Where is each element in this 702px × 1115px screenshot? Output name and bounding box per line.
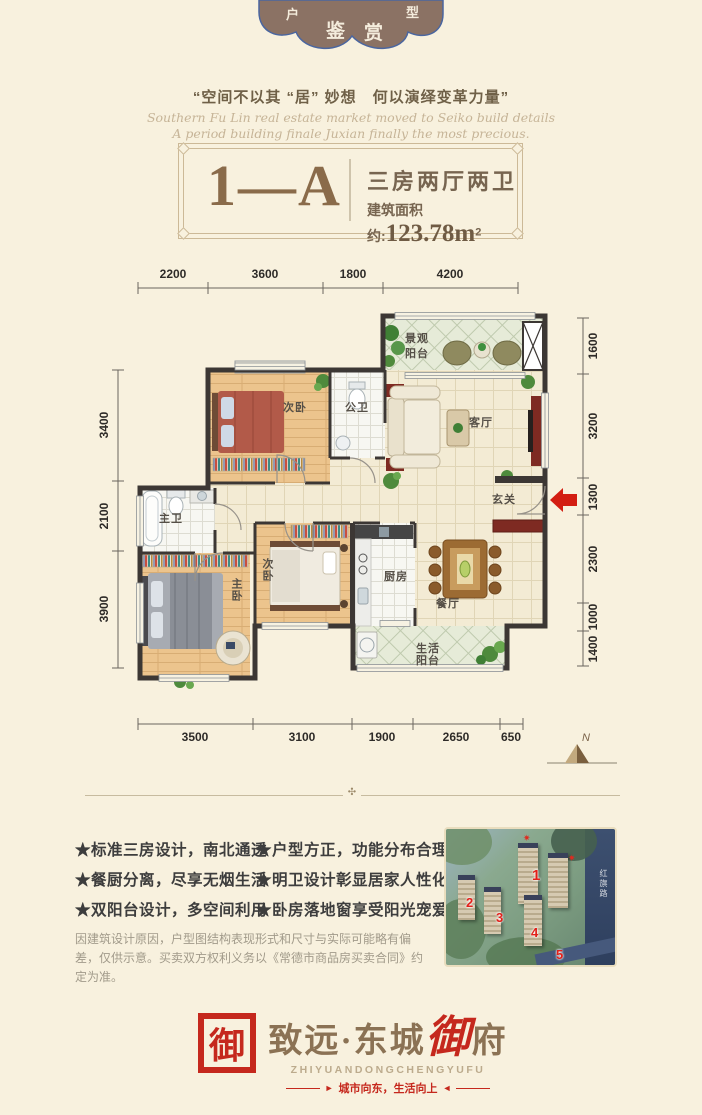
unit-area-sup: 2 [475, 226, 481, 238]
unit-area: 建筑面积约:123.78m2 [367, 200, 522, 248]
logo-star-icon: ✷ [523, 833, 531, 844]
dim-right-0: 1600 [586, 332, 600, 359]
brand-tagline: 城市向东，生活向上 [339, 1080, 438, 1096]
dim-bottom-2: 1900 [369, 730, 396, 744]
logo-star-icon: ✷ [568, 853, 576, 864]
dim-top-1: 3600 [252, 267, 279, 281]
tagline-arrow-right-icon: ► [325, 1083, 334, 1093]
brand-suffix: 府 [472, 1023, 508, 1060]
dim-right-4: 1000 [586, 603, 600, 630]
brand-name: 致远·东城御府 [268, 1018, 508, 1062]
dim-right-5: 1400 [586, 635, 600, 662]
north-arrow-icon [577, 744, 589, 763]
label-view-balcony-1: 景观 [404, 332, 429, 345]
badge-char-hu: 户 [286, 7, 299, 22]
label-view-balcony-2: 阳台 [405, 346, 429, 360]
unit-spec: 三房两厅两卫 建筑面积约:123.78m2 [367, 164, 522, 248]
feature-item: ★标准三房设计，南北通透 [75, 836, 267, 866]
label-kitchen: 厨房 [384, 569, 408, 583]
header-badge: 户 鉴 赏 型 [256, 0, 446, 58]
dim-left-2: 3900 [97, 595, 111, 622]
unit-title-box: 1—A 三房两厅两卫 建筑面积约:123.78m2 [178, 143, 523, 239]
unit-number: 1—A [207, 152, 342, 219]
feature-list-right: ★户型方正，功能分布合理 ★明卫设计彰显居家人性化 ★卧房落地窗享受阳光宠爱 [256, 836, 448, 926]
badge-char-jian: 鉴 [325, 20, 346, 42]
poster-page: 户 鉴 赏 型 “空间不以其 “居” 妙想 何以演绎变革力量” Southern… [0, 0, 702, 1115]
label-life-balcony-2: 阳台 [416, 653, 440, 667]
trees [444, 827, 492, 865]
north-arrow-icon [565, 744, 577, 763]
dining-table [429, 540, 501, 598]
frame-corner-icon [511, 142, 524, 155]
dim-bottom-1: 3100 [289, 730, 316, 744]
slogan: “空间不以其 “居” 妙想 何以演绎变革力量” [0, 86, 702, 107]
label-master-bath: 主卫 [159, 511, 183, 525]
english-script-line1: Southern Fu Lin real estate market moved… [0, 110, 702, 126]
feature-item: ★餐厨分离，尽享无烟生活 [75, 866, 267, 896]
feature-item: ★卧房落地窗享受阳光宠爱 [256, 896, 448, 926]
label-master-bedroom: 主卧 [230, 577, 243, 602]
dim-left-0: 3400 [97, 411, 111, 438]
north-label: N [582, 732, 590, 744]
north-indicator: N [547, 732, 617, 763]
label-public-bath: 公卫 [345, 401, 369, 414]
badge-char-xing: 型 [406, 5, 419, 20]
dim-right-3: 2300 [586, 545, 600, 572]
label-dining: 餐厅 [435, 596, 460, 610]
label-bedroom-mid: 次卧 [261, 557, 274, 582]
entry-arrow-icon [550, 488, 577, 512]
building-number-2: 2 [466, 895, 473, 910]
disclaimer: 因建筑设计原因，户型图结构表现形式和尺寸与实际可能略有偏差，仅供示意。买卖双方权… [75, 930, 433, 987]
seal-character: 御 [209, 1017, 245, 1069]
badge-char-shang: 赏 [364, 21, 383, 44]
label-living: 客厅 [468, 415, 493, 429]
divider-ornament-icon: ✣ [343, 787, 361, 798]
dim-bottom-4: 650 [501, 730, 521, 744]
aerial-rendering: ✷ ✷ 1 2 3 4 5 红旗路 [444, 827, 617, 967]
tower-1b [548, 853, 568, 908]
frame-corner-icon [177, 227, 190, 240]
feature-item: ★双阳台设计，多空间利用 [75, 896, 267, 926]
floor-plan: 次卧 公卫 客厅 景观 阳台 玄关 主卫 主卧 次卧 厨房 餐厅 生活 阳台 2… [95, 258, 640, 770]
building-number-1: 1 [532, 867, 540, 884]
tagline-bar [456, 1088, 490, 1089]
brand-block: 致远·东城御府 ZHIYUANDONGCHENGYUFU ► 城市向东，生活向上… [268, 1018, 508, 1096]
building-number-3: 3 [496, 910, 503, 925]
dim-top-0: 2200 [160, 267, 187, 281]
tagline-arrow-left-icon: ◄ [443, 1083, 452, 1093]
feature-list-left: ★标准三房设计，南北通透 ★餐厨分离，尽享无烟生活 ★双阳台设计，多空间利用 [75, 836, 267, 926]
feature-item: ★明卫设计彰显居家人性化 [256, 866, 448, 896]
english-script: Southern Fu Lin real estate market moved… [0, 110, 702, 142]
brand-seal: 御 [198, 1013, 256, 1073]
dim-top-2: 1800 [340, 267, 367, 281]
brand-latin: ZHIYUANDONGCHENGYUFU [268, 1064, 508, 1076]
dim-bottom-3: 2650 [443, 730, 470, 744]
building-number-4: 4 [531, 925, 538, 940]
unit-type: 三房两厅两卫 [367, 164, 522, 196]
tagline-bar [286, 1088, 320, 1089]
title-divider [349, 159, 351, 221]
building-number-5: 5 [556, 947, 563, 962]
english-script-line2: A period building finale Juxian finally … [0, 126, 702, 142]
brand-accent: 御 [426, 1012, 472, 1063]
dim-left-1: 2100 [97, 502, 111, 529]
dim-right-2: 1300 [586, 483, 600, 510]
elevator-icon [523, 322, 543, 370]
frame-corner-icon [177, 142, 190, 155]
brand-tagline-row: ► 城市向东，生活向上 ◄ [268, 1080, 508, 1096]
dim-right-1: 3200 [586, 412, 600, 439]
label-entry: 玄关 [492, 492, 516, 506]
dim-top-3: 4200 [437, 267, 464, 281]
feature-item: ★户型方正，功能分布合理 [256, 836, 448, 866]
dim-bottom-0: 3500 [182, 730, 209, 744]
label-life-balcony-1: 生活 [416, 641, 440, 655]
unit-area-value: 123.78m [386, 220, 476, 247]
label-bedroom-top: 次卧 [283, 400, 307, 414]
road-label: 红旗路 [598, 869, 609, 899]
brand-prefix: 致远·东城 [268, 1023, 425, 1060]
